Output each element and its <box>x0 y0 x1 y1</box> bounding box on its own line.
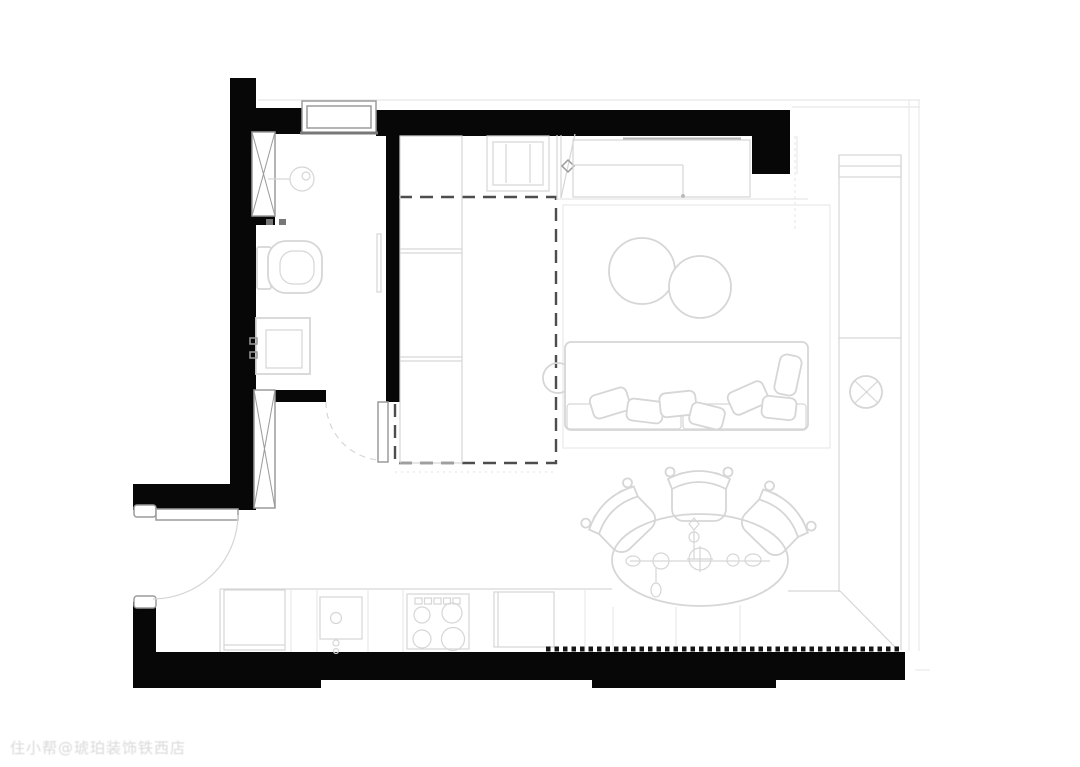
dining-area <box>579 468 817 607</box>
cooktop-knob <box>425 598 432 604</box>
closet-cabinets <box>400 136 462 463</box>
light-inner-circle <box>302 172 310 180</box>
floor-plan-canvas: 住小帮@琥珀装饰铁西店 <box>0 0 1080 767</box>
dishwasher <box>494 592 554 647</box>
bottom-wall <box>133 652 905 680</box>
door-jamb-cap <box>134 505 156 517</box>
toilet-valve <box>266 219 273 225</box>
bottom-wall-step-left <box>133 680 321 688</box>
living-area <box>543 205 830 448</box>
toilet-valve <box>279 219 286 225</box>
riser-shaft-bottom <box>254 390 275 508</box>
top-wall-left-of-window <box>256 108 303 134</box>
pillow <box>626 398 664 424</box>
appliance-inner <box>493 142 543 185</box>
faucet-dot <box>333 640 339 646</box>
light-circle <box>290 167 314 191</box>
entry-lower-stub-wall <box>133 602 156 656</box>
burner <box>414 607 430 623</box>
vanity-sink <box>250 318 310 374</box>
door-jamb-cap <box>134 596 156 608</box>
corner-counter-diagonal <box>840 591 898 650</box>
built-in-appliance <box>487 136 549 191</box>
closet-dashed-boundary <box>395 197 556 463</box>
bathroom-door <box>326 402 388 462</box>
bathroom-right-wall <box>386 135 400 402</box>
dashed-closet-zone <box>395 136 556 472</box>
fridge-outline <box>224 590 285 650</box>
entry-door-swing-arc <box>153 515 238 599</box>
cooktop-knob <box>415 598 422 604</box>
top-wall <box>376 110 752 136</box>
top-right-wall-return <box>752 110 790 174</box>
sink-drain <box>331 613 342 624</box>
bathroom-door-leaf <box>378 402 388 462</box>
decor-cup <box>727 554 739 566</box>
dining-chair-top <box>666 468 733 522</box>
sofa <box>565 342 808 431</box>
counter-dot <box>681 194 685 198</box>
kitchen-sink <box>320 597 362 654</box>
towel-rail <box>377 234 381 292</box>
dishwasher-outline <box>494 592 554 647</box>
entry-door <box>134 505 238 608</box>
dining-chair-left <box>579 477 664 562</box>
pillow <box>761 395 797 420</box>
dining-chair-right <box>732 480 817 565</box>
decor-dish <box>745 554 761 566</box>
kitchen-bottom-counter <box>220 589 903 654</box>
riser-shaft-top <box>252 132 275 216</box>
coffee-table-large <box>609 238 675 304</box>
entry-door-leaf <box>156 509 238 520</box>
fridge-cabinet <box>224 590 285 650</box>
floor-plan-drawing <box>0 0 1080 767</box>
burner <box>442 603 462 623</box>
burner <box>413 630 431 648</box>
watermark-text: 住小帮@琥珀装饰铁西店 <box>10 737 186 758</box>
cooktop-knob <box>434 598 441 604</box>
bathroom-door-swing-arc <box>326 402 378 460</box>
cooktop-4-burner <box>407 594 469 651</box>
exhaust-fan-symbol <box>850 376 882 408</box>
toilet <box>257 219 322 293</box>
pendant-drop <box>651 583 661 597</box>
bottom-wall-step-right <box>592 680 776 688</box>
appliance-outer <box>487 136 549 191</box>
window <box>300 101 378 133</box>
counter-outline <box>573 140 750 197</box>
coffee-table-small <box>669 256 731 318</box>
burner <box>442 628 465 651</box>
